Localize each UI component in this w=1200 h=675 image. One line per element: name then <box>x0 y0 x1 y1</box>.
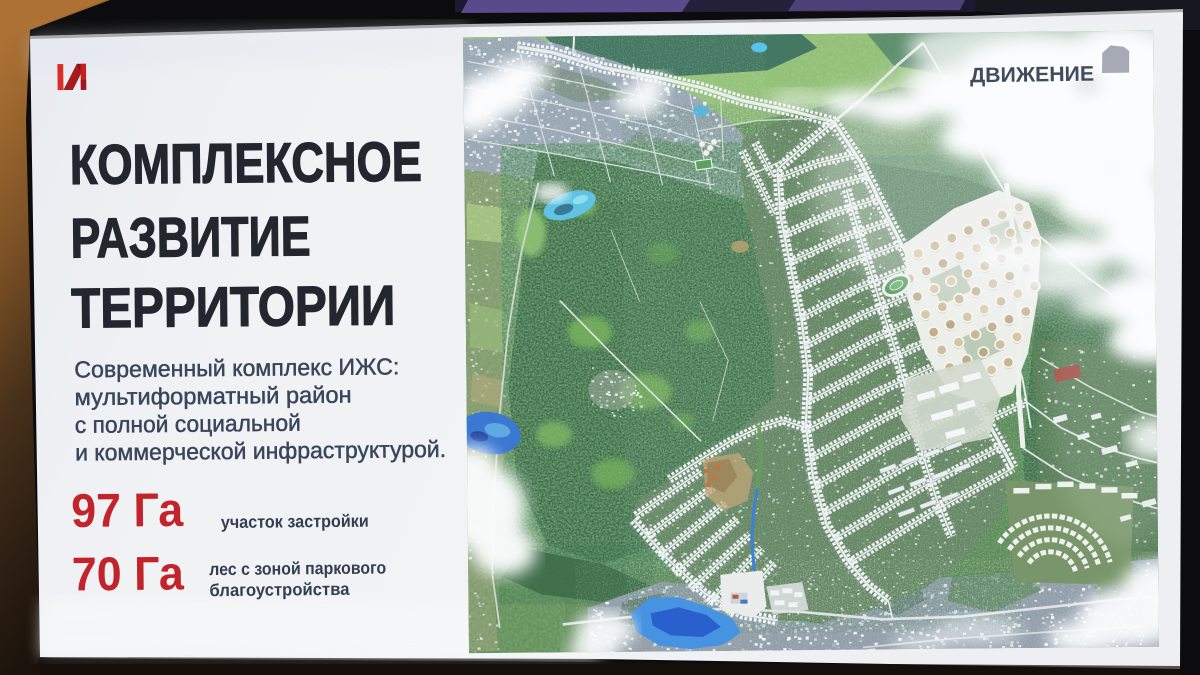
svg-text:и коммерческой инфраструктурой: и коммерческой инфраструктурой. <box>75 436 446 466</box>
svg-text:участок застройки: участок застройки <box>221 511 369 532</box>
svg-text:РАЗВИТИЕ: РАЗВИТИЕ <box>70 204 311 269</box>
svg-text:благоустройства: благоустройства <box>209 579 349 600</box>
svg-text:с полной социальной: с полной социальной <box>75 410 301 438</box>
svg-text:97 Га: 97 Га <box>71 484 184 538</box>
svg-text:ТЕРРИТОРИИ: ТЕРРИТОРИИ <box>71 273 396 339</box>
svg-text:мультиформатный район: мультиформатный район <box>74 382 351 411</box>
svg-text:Современный комплекс ИЖС:: Современный комплекс ИЖС: <box>74 353 399 382</box>
svg-text:лес с зоной паркового: лес с зоной паркового <box>209 557 386 579</box>
svg-text:КОМПЛЕКСНОЕ: КОМПЛЕКСНОЕ <box>70 130 423 196</box>
svg-text:ДВИЖЕНИЕ: ДВИЖЕНИЕ <box>970 63 1094 88</box>
svg-text:70 Га: 70 Га <box>72 547 185 601</box>
